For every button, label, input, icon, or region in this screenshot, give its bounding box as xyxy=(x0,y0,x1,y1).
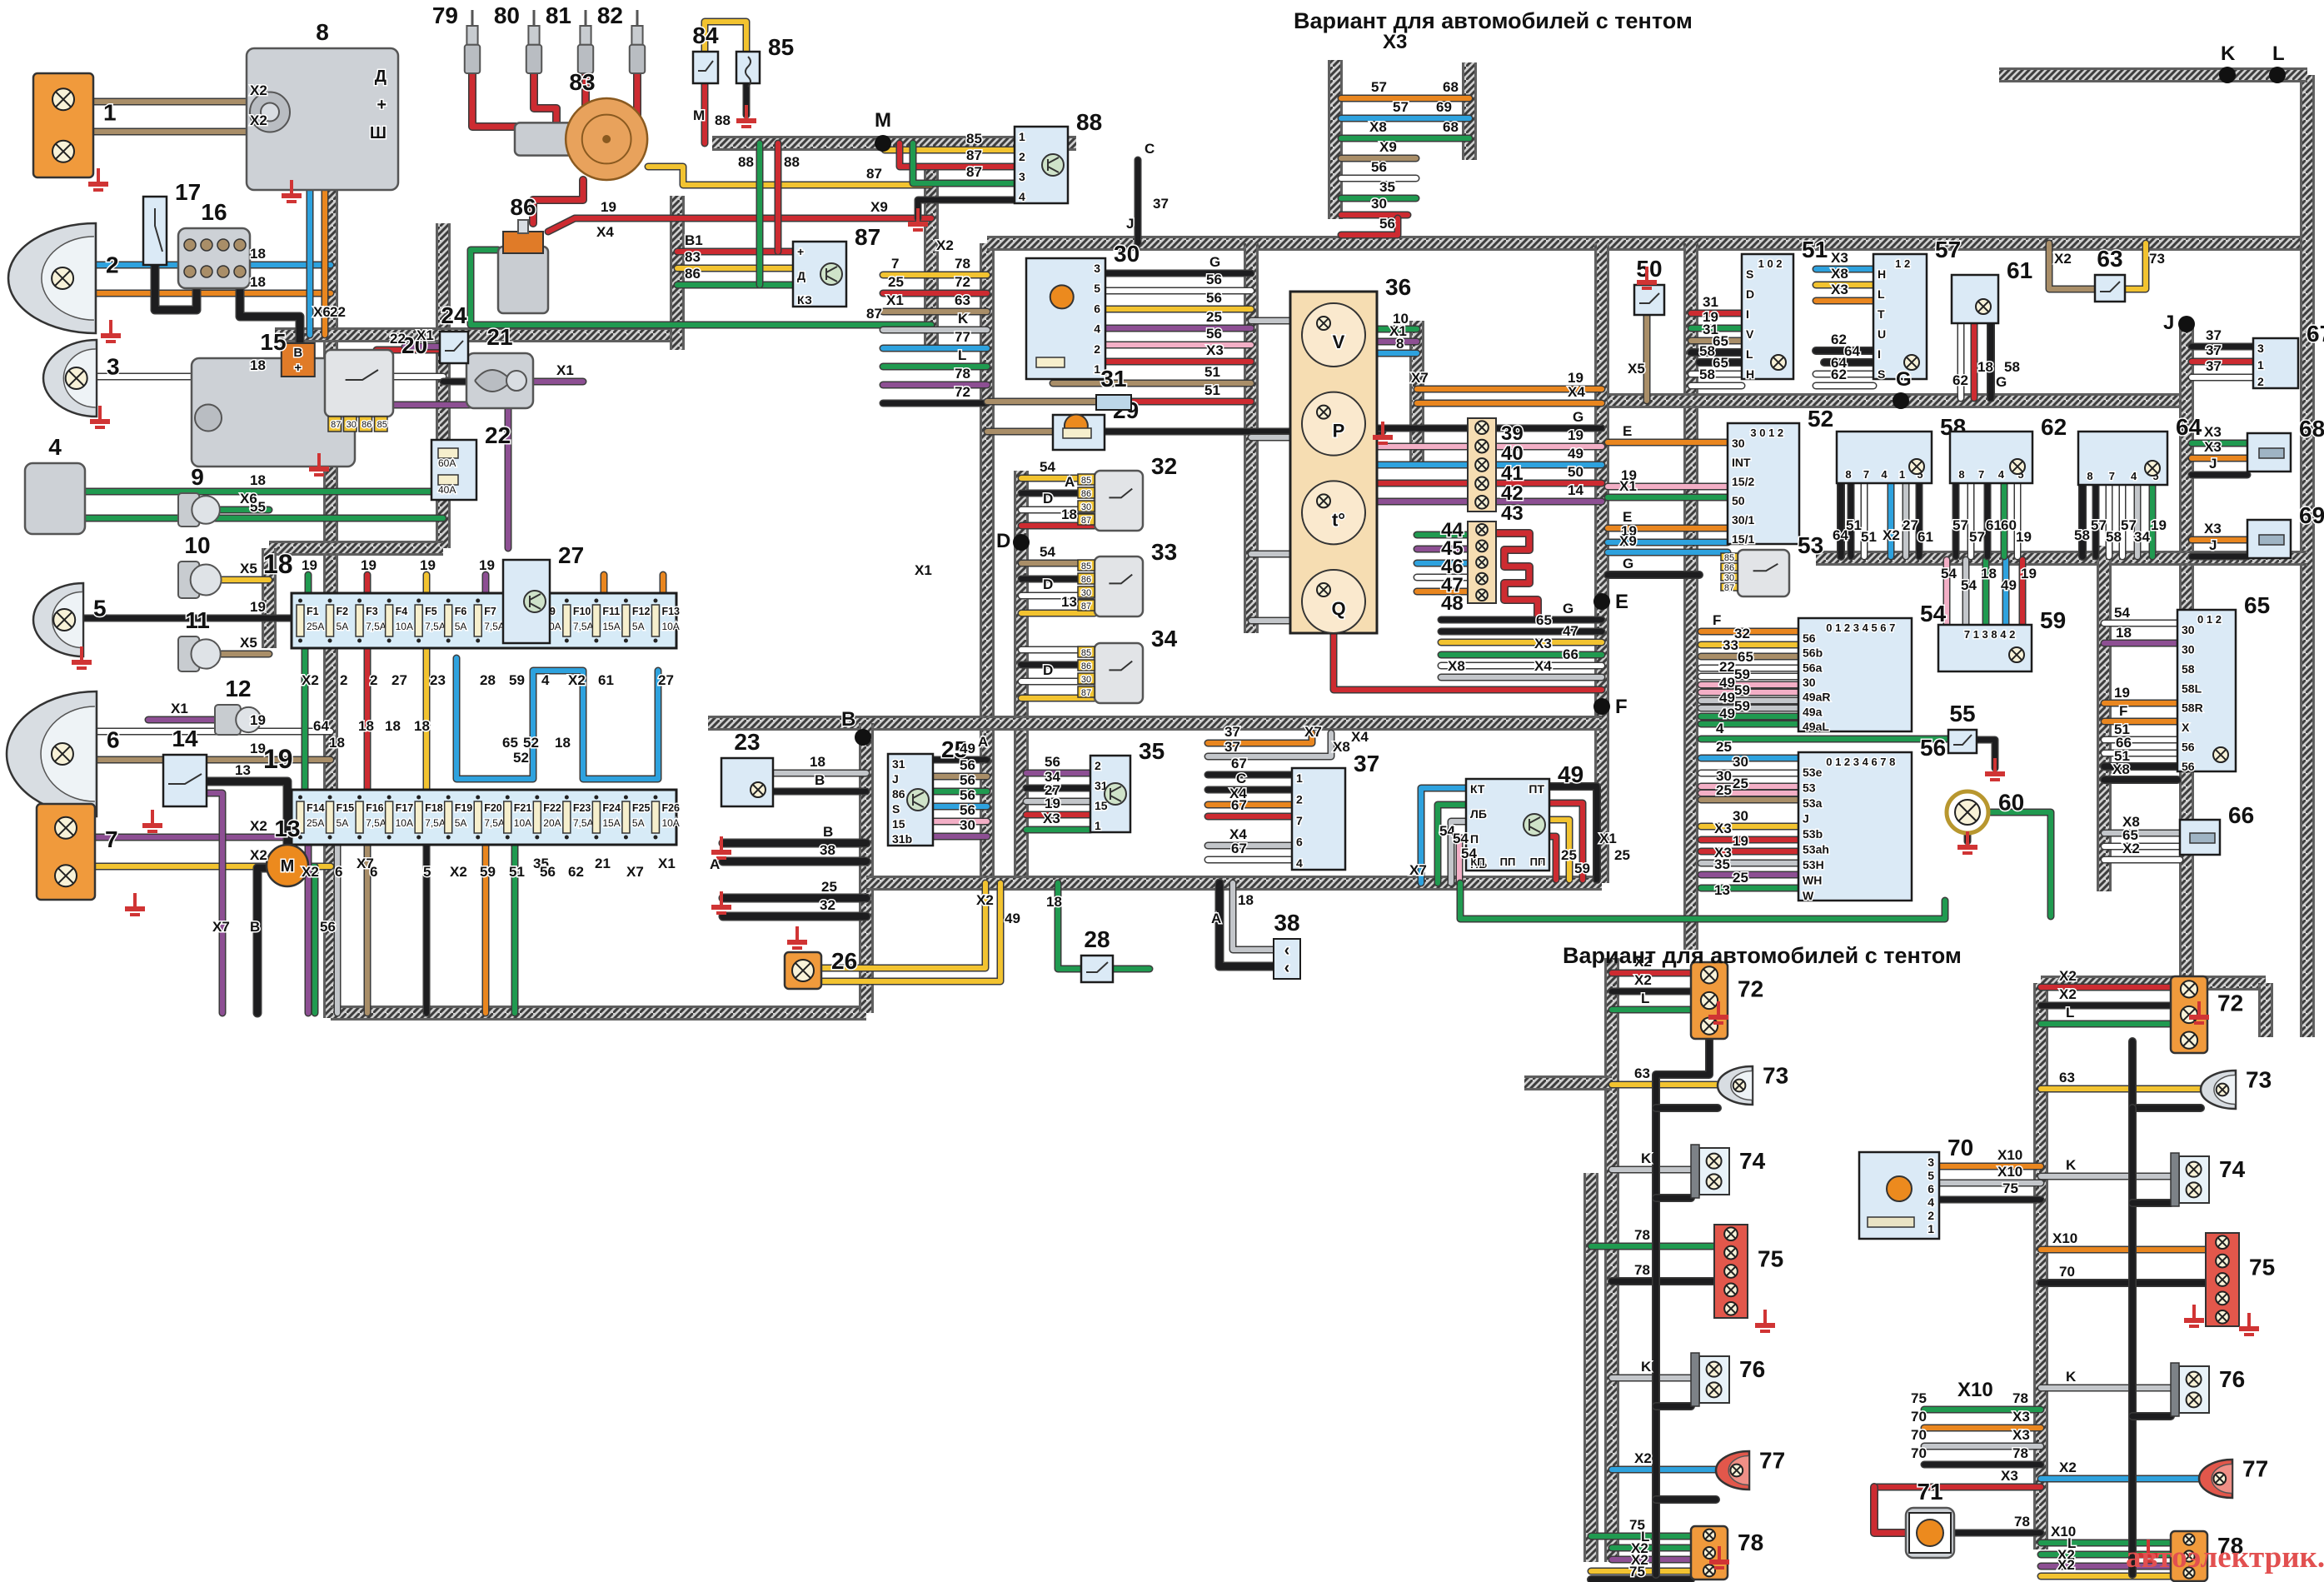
svg-text:56: 56 xyxy=(960,802,975,818)
component-50[interactable]: 50 xyxy=(1634,256,1664,315)
svg-text:19: 19 xyxy=(2114,685,2130,701)
svg-text:22: 22 xyxy=(390,331,406,347)
component-strip[interactable] xyxy=(1468,522,1496,603)
component-51[interactable]: 1 0 2SDIVLH51 xyxy=(1742,237,1828,381)
svg-text:2: 2 xyxy=(1928,1209,1934,1222)
svg-text:G: G xyxy=(1996,374,2007,390)
svg-text:86: 86 xyxy=(685,266,701,282)
bulb-icon xyxy=(2187,1162,2202,1177)
component-38[interactable]: ‹‹38 xyxy=(1274,910,1300,979)
svg-text:G: G xyxy=(1209,254,1220,270)
tent-variant-title-top: Вариант для автомобилей с тентом xyxy=(1294,8,1693,34)
component-76[interactable]: 76 xyxy=(1691,1353,1765,1406)
svg-text:60: 60 xyxy=(2001,517,2017,533)
svg-text:62: 62 xyxy=(1952,372,1968,388)
svg-text:49: 49 xyxy=(1719,675,1735,691)
svg-text:5A: 5A xyxy=(337,621,349,632)
component-75[interactable]: 75 xyxy=(1714,1225,1783,1318)
bulb-icon xyxy=(1724,1302,1738,1315)
svg-text:37: 37 xyxy=(1153,196,1169,212)
svg-text:1: 1 xyxy=(1928,1222,1934,1235)
svg-text:30: 30 xyxy=(2182,623,2195,636)
svg-text:25: 25 xyxy=(1614,847,1630,863)
svg-text:I: I xyxy=(1746,307,1749,321)
svg-text:56: 56 xyxy=(1920,735,1946,761)
svg-text:63: 63 xyxy=(2059,1070,2075,1085)
svg-text:30: 30 xyxy=(1733,754,1748,770)
svg-text:4: 4 xyxy=(541,672,550,688)
svg-text:2: 2 xyxy=(340,672,347,688)
svg-text:10A: 10A xyxy=(661,621,679,632)
svg-text:G: G xyxy=(1623,556,1633,571)
svg-text:56a: 56a xyxy=(1803,661,1823,674)
svg-text:5A: 5A xyxy=(337,817,349,829)
svg-text:2: 2 xyxy=(1296,793,1303,806)
svg-text:X10: X10 xyxy=(1997,1147,2022,1163)
svg-text:X5: X5 xyxy=(240,635,257,651)
svg-text:59: 59 xyxy=(1734,698,1750,714)
component-31[interactable]: 31 xyxy=(1096,366,1131,410)
svg-text:7: 7 xyxy=(105,826,118,852)
svg-text:38: 38 xyxy=(1274,910,1299,936)
svg-text:8: 8 xyxy=(1958,468,1964,481)
svg-text:15A: 15A xyxy=(602,621,620,632)
svg-text:67: 67 xyxy=(1231,841,1247,856)
ground-symbol xyxy=(101,320,121,343)
svg-text:X1: X1 xyxy=(915,562,932,578)
svg-text:S: S xyxy=(1746,267,1753,281)
svg-text:D: D xyxy=(1746,287,1754,301)
svg-text:B: B xyxy=(841,708,855,731)
svg-text:3: 3 xyxy=(1928,1155,1934,1169)
svg-text:78: 78 xyxy=(1738,1530,1763,1555)
svg-text:59: 59 xyxy=(2040,607,2066,633)
svg-text:15: 15 xyxy=(892,817,905,831)
svg-text:79: 79 xyxy=(432,2,458,28)
bulb-icon xyxy=(1724,1265,1738,1278)
svg-text:28: 28 xyxy=(1084,926,1110,952)
svg-text:19: 19 xyxy=(361,557,377,573)
component-88[interactable]: 123488 xyxy=(1015,109,1102,203)
svg-text:X8: X8 xyxy=(1448,658,1465,674)
svg-text:Д: Д xyxy=(375,67,387,86)
svg-text:87: 87 xyxy=(1081,688,1091,698)
svg-text:18: 18 xyxy=(1981,566,1997,581)
bulb-icon xyxy=(2010,459,2025,474)
svg-text:X3: X3 xyxy=(2012,1409,2030,1425)
svg-text:54: 54 xyxy=(1941,566,1957,581)
svg-text:72: 72 xyxy=(1738,976,1763,1001)
svg-text:20A: 20A xyxy=(543,817,561,829)
component-34[interactable]: 8586308734 xyxy=(1078,626,1178,703)
bulb-icon xyxy=(1771,355,1786,370)
svg-text:U: U xyxy=(1878,327,1886,341)
wiring-diagram-page: F125AF25AF37,5AF410AF57,5AF65AF77,5AF810… xyxy=(0,0,2324,1582)
svg-text:52: 52 xyxy=(513,750,529,766)
svg-text:X2: X2 xyxy=(2054,251,2072,267)
svg-text:31: 31 xyxy=(1703,294,1718,310)
svg-text:12: 12 xyxy=(225,676,251,701)
svg-text:4: 4 xyxy=(2131,470,2137,482)
component-60[interactable]: 60 xyxy=(1947,790,2024,834)
svg-text:X10: X10 xyxy=(1957,1379,1993,1401)
svg-text:K: K xyxy=(2221,42,2236,65)
svg-text:54: 54 xyxy=(2114,605,2130,621)
fusebox-19[interactable]: F1425AF155AF167,5AF1710AF187,5AF195AF207… xyxy=(292,790,680,845)
component-62[interactable]: 874562 xyxy=(1950,414,2067,483)
svg-text:F: F xyxy=(2119,703,2127,719)
svg-text:4: 4 xyxy=(1716,721,1724,736)
svg-text:B: B xyxy=(250,919,260,935)
svg-text:88: 88 xyxy=(784,154,800,170)
component-65[interactable]: 0 1 230305858L58RX565665 xyxy=(2177,592,2270,773)
svg-text:ПТ: ПТ xyxy=(1529,782,1544,796)
component-77[interactable]: 77 xyxy=(2199,1456,2268,1498)
svg-text:X: X xyxy=(2182,721,2190,734)
component-76[interactable]: 76 xyxy=(2171,1363,2245,1416)
svg-text:X1: X1 xyxy=(556,362,574,378)
component-5[interactable]: 5 xyxy=(33,583,107,656)
ground-symbol xyxy=(1957,831,1977,855)
svg-text:18: 18 xyxy=(1238,892,1254,908)
svg-text:L: L xyxy=(958,347,966,363)
component-4[interactable]: 4 xyxy=(25,434,85,534)
transistor-icon xyxy=(907,789,929,811)
svg-text:85: 85 xyxy=(1724,553,1734,563)
svg-text:35: 35 xyxy=(1139,738,1164,764)
component-54[interactable]: 0 1 2 3 4 5 6 75656b56a3049aR49a49aL54 xyxy=(1798,601,1947,733)
svg-text:24: 24 xyxy=(441,302,467,328)
svg-text:ПП: ПП xyxy=(1500,856,1516,868)
svg-text:L: L xyxy=(2272,42,2285,65)
component-10[interactable]: 10 xyxy=(178,532,222,598)
svg-text:57: 57 xyxy=(1935,237,1961,262)
svg-text:X8: X8 xyxy=(1333,739,1350,755)
bulb-icon xyxy=(2213,1473,2226,1485)
svg-text:49a: 49a xyxy=(1803,705,1823,718)
component-6[interactable]: 6 xyxy=(7,691,120,816)
svg-text:70: 70 xyxy=(2059,1264,2075,1280)
svg-text:76: 76 xyxy=(2219,1366,2245,1392)
svg-text:V: V xyxy=(1333,332,1345,352)
component-87[interactable]: +ДКЗ87 xyxy=(793,224,880,307)
svg-text:E: E xyxy=(1615,591,1628,613)
svg-text:30: 30 xyxy=(1081,502,1091,512)
svg-text:M: M xyxy=(875,109,891,132)
svg-text:30: 30 xyxy=(1724,573,1734,583)
svg-text:X3: X3 xyxy=(2204,424,2222,440)
svg-text:X2: X2 xyxy=(250,112,267,128)
bulb-icon xyxy=(2216,1310,2229,1324)
svg-text:37: 37 xyxy=(1224,739,1240,755)
bulb-icon xyxy=(66,367,87,389)
svg-text:7,5A: 7,5A xyxy=(573,621,594,632)
svg-text:21: 21 xyxy=(486,324,512,350)
component-24[interactable]: 24 xyxy=(440,302,468,363)
svg-text:10A: 10A xyxy=(396,621,413,632)
svg-text:61: 61 xyxy=(598,672,614,688)
svg-text:F1: F1 xyxy=(307,606,319,617)
ground-symbol xyxy=(1755,1310,1775,1333)
svg-text:6: 6 xyxy=(1296,836,1303,849)
svg-text:X2: X2 xyxy=(976,892,994,908)
svg-text:85: 85 xyxy=(768,34,794,60)
svg-text:D: D xyxy=(1043,662,1053,678)
svg-text:X6: X6 xyxy=(240,491,257,507)
component-33[interactable]: 8586308733 xyxy=(1078,539,1177,616)
svg-text:58L: 58L xyxy=(2182,681,2202,695)
svg-text:72: 72 xyxy=(2217,990,2243,1016)
component-23[interactable]: 23 xyxy=(721,729,773,806)
component-79[interactable]: 79 xyxy=(432,2,480,73)
bulb-icon xyxy=(55,865,77,886)
component-74[interactable]: 74 xyxy=(2171,1153,2246,1206)
svg-text:53H: 53H xyxy=(1803,858,1824,871)
component-37[interactable]: 1276437 xyxy=(1292,751,1379,870)
svg-text:34: 34 xyxy=(2134,529,2150,545)
svg-text:H: H xyxy=(1746,367,1754,381)
svg-text:M: M xyxy=(281,857,295,876)
svg-text:5: 5 xyxy=(423,864,431,880)
svg-text:18: 18 xyxy=(2116,625,2132,641)
component-1[interactable]: 1 xyxy=(33,73,117,177)
bulb-icon xyxy=(1703,1530,1715,1541)
svg-text:56: 56 xyxy=(1371,159,1387,175)
svg-text:1: 1 xyxy=(1095,819,1101,832)
svg-text:X2: X2 xyxy=(302,672,319,688)
component-72[interactable]: 72 xyxy=(1691,962,1763,1039)
wire xyxy=(1656,1039,1709,1575)
svg-text:22: 22 xyxy=(330,304,346,320)
svg-text:63: 63 xyxy=(955,292,970,308)
fusebox-18[interactable]: F125AF25AF37,5AF410AF57,5AF65AF77,5AF810… xyxy=(292,593,680,648)
svg-text:78: 78 xyxy=(2012,1445,2028,1461)
svg-text:25: 25 xyxy=(1716,782,1732,798)
svg-text:K: K xyxy=(1641,1150,1652,1166)
svg-text:59: 59 xyxy=(509,672,525,688)
svg-text:X2: X2 xyxy=(1634,1450,1652,1466)
svg-text:18: 18 xyxy=(358,718,374,734)
svg-text:13: 13 xyxy=(1061,594,1077,610)
svg-text:58R: 58R xyxy=(2182,701,2203,715)
component-32[interactable]: 8586308732 xyxy=(1078,453,1177,531)
component-16[interactable]: 16 xyxy=(178,199,250,288)
svg-text:23: 23 xyxy=(430,672,446,688)
svg-text:53e: 53e xyxy=(1803,766,1823,779)
component-77[interactable]: 77 xyxy=(1716,1448,1785,1490)
component-82[interactable]: 82 xyxy=(597,2,645,73)
svg-text:2: 2 xyxy=(106,252,119,277)
svg-text:54: 54 xyxy=(1453,831,1469,846)
svg-text:63: 63 xyxy=(1634,1065,1650,1081)
component-78[interactable]: 78 xyxy=(1691,1526,1763,1580)
svg-text:t°: t° xyxy=(1332,509,1345,530)
bulb-icon xyxy=(1724,1284,1738,1297)
bulb-icon xyxy=(1476,524,1488,536)
svg-text:19: 19 xyxy=(250,712,266,728)
svg-text:17: 17 xyxy=(175,179,201,205)
component-52[interactable]: 3 0 1 230INT15/25030/115/152 xyxy=(1728,406,1833,546)
svg-text:X4: X4 xyxy=(1351,729,1369,745)
svg-text:75: 75 xyxy=(1911,1390,1927,1406)
svg-text:7,5A: 7,5A xyxy=(366,621,387,632)
bulb-icon xyxy=(1707,1174,1722,1189)
component-80[interactable]: 80 xyxy=(494,2,541,73)
svg-text:Ш: Ш xyxy=(370,124,387,142)
svg-text:27: 27 xyxy=(1903,517,1918,533)
transistor-icon xyxy=(820,263,842,285)
component-84[interactable]: 84 xyxy=(692,22,719,83)
component-73[interactable]: 73 xyxy=(2201,1067,2272,1109)
component-74[interactable]: 74 xyxy=(1691,1145,1766,1198)
svg-text:14: 14 xyxy=(172,726,198,751)
component-61[interactable]: 61 xyxy=(1952,257,2032,323)
component-28[interactable]: 28 xyxy=(1081,926,1113,982)
watermark-text: автоэлектрик.net xyxy=(2126,1540,2324,1575)
svg-text:63: 63 xyxy=(2097,246,2122,272)
bulb-icon xyxy=(2216,1292,2229,1305)
svg-text:25: 25 xyxy=(821,879,837,895)
wire xyxy=(257,868,267,1013)
bulb-icon xyxy=(52,267,73,289)
svg-text:19: 19 xyxy=(1568,427,1583,443)
svg-text:50: 50 xyxy=(1636,256,1662,282)
svg-text:F25: F25 xyxy=(632,802,651,814)
svg-text:S: S xyxy=(1878,367,1885,381)
bulb-icon xyxy=(1703,1565,1715,1576)
svg-text:4: 4 xyxy=(1019,190,1025,203)
tent-variant-title-bottom: Вариант для автомобилей с тентом xyxy=(1563,943,1962,969)
svg-text:T: T xyxy=(1878,307,1885,321)
svg-text:7: 7 xyxy=(891,256,899,272)
svg-text:K: K xyxy=(2066,1369,2077,1385)
svg-text:7 1 3 8 4 2: 7 1 3 8 4 2 xyxy=(1964,628,2015,641)
component-58[interactable]: 8741558 xyxy=(1837,414,1966,483)
svg-text:50: 50 xyxy=(1732,494,1745,507)
svg-text:1: 1 xyxy=(1296,771,1303,785)
svg-text:21: 21 xyxy=(595,856,611,871)
svg-text:56: 56 xyxy=(1045,754,1060,770)
component-75[interactable]: 75 xyxy=(2206,1233,2275,1326)
svg-text:83: 83 xyxy=(685,249,701,265)
component-73[interactable]: 73 xyxy=(1718,1063,1788,1105)
svg-text:X8: X8 xyxy=(1831,266,1848,282)
svg-text:37: 37 xyxy=(1224,724,1240,740)
svg-text:КЗ: КЗ xyxy=(797,293,812,307)
svg-text:50: 50 xyxy=(1568,464,1583,480)
svg-text:5A: 5A xyxy=(455,621,467,632)
svg-text:57: 57 xyxy=(1952,517,1968,533)
svg-text:18: 18 xyxy=(385,718,401,734)
bulb-icon xyxy=(1909,459,1924,474)
svg-text:30: 30 xyxy=(960,817,975,833)
svg-text:13: 13 xyxy=(1714,882,1730,898)
svg-text:19: 19 xyxy=(1045,796,1060,811)
svg-text:L: L xyxy=(2066,1005,2074,1021)
svg-text:3 0 1 2: 3 0 1 2 xyxy=(1750,427,1783,439)
svg-text:J: J xyxy=(1803,812,1809,826)
svg-text:32: 32 xyxy=(1151,453,1177,479)
svg-text:86: 86 xyxy=(362,420,372,430)
svg-text:56: 56 xyxy=(2182,741,2195,754)
wire xyxy=(1988,812,2051,916)
component-56[interactable]: 0 1 2 3 4 6 7 853e5353aJ53b53ah53HWHW56 xyxy=(1798,735,1946,902)
svg-text:F10: F10 xyxy=(573,606,591,617)
svg-text:71: 71 xyxy=(1917,1479,1942,1505)
component-7[interactable]: 7 xyxy=(37,804,118,900)
svg-text:19: 19 xyxy=(2021,566,2037,581)
svg-text:73: 73 xyxy=(2246,1067,2272,1093)
component-86[interactable]: 86 xyxy=(498,194,548,313)
svg-text:0 1 2: 0 1 2 xyxy=(2197,613,2222,626)
svg-text:S: S xyxy=(892,802,900,816)
svg-text:9: 9 xyxy=(191,464,204,490)
svg-text:18: 18 xyxy=(1061,507,1077,522)
svg-text:51: 51 xyxy=(1846,517,1862,533)
component-3[interactable]: 3 xyxy=(43,340,120,417)
svg-text:88: 88 xyxy=(1076,109,1102,135)
component-8[interactable]: Д+Ш8 xyxy=(247,19,398,190)
svg-text:F4: F4 xyxy=(396,606,408,617)
svg-text:X2: X2 xyxy=(2059,986,2077,1002)
svg-text:62: 62 xyxy=(2041,414,2067,440)
svg-text:J: J xyxy=(892,772,899,786)
svg-text:85: 85 xyxy=(377,420,387,430)
component-2[interactable]: 2 xyxy=(8,223,119,333)
svg-text:КТ: КТ xyxy=(1470,782,1485,796)
component-63[interactable]: 63 xyxy=(2095,246,2125,302)
svg-text:37: 37 xyxy=(1354,751,1379,776)
svg-text:F17: F17 xyxy=(396,802,414,814)
component-35[interactable]: 23115135 xyxy=(1090,738,1164,832)
svg-text:B: B xyxy=(823,824,833,840)
svg-text:D: D xyxy=(1043,576,1053,592)
bulb-icon xyxy=(1707,1362,1722,1377)
svg-text:3: 3 xyxy=(1094,262,1100,275)
svg-text:88: 88 xyxy=(738,154,754,170)
svg-text:33: 33 xyxy=(1151,539,1177,565)
svg-text:F6: F6 xyxy=(455,606,467,617)
svg-text:WH: WH xyxy=(1803,874,1822,887)
component-55[interactable]: 55 xyxy=(1948,701,1977,753)
svg-text:Q: Q xyxy=(1331,598,1345,619)
svg-text:62: 62 xyxy=(1831,367,1847,382)
svg-text:86: 86 xyxy=(1724,563,1734,573)
component-57[interactable]: 1 2HLTUIS57 xyxy=(1873,237,1961,381)
svg-text:66: 66 xyxy=(2228,802,2254,828)
svg-text:1 0 2: 1 0 2 xyxy=(1758,257,1783,270)
svg-text:X8: X8 xyxy=(1369,119,1387,135)
svg-text:1 2: 1 2 xyxy=(1895,257,1910,270)
svg-text:56: 56 xyxy=(540,864,556,880)
junction-L: L xyxy=(2269,42,2286,83)
svg-text:51: 51 xyxy=(1861,529,1877,545)
svg-text:85: 85 xyxy=(966,131,982,147)
ground-symbol xyxy=(142,810,162,833)
svg-text:54: 54 xyxy=(1920,601,1947,626)
svg-text:59: 59 xyxy=(1734,666,1750,682)
component-strip[interactable] xyxy=(1468,418,1496,512)
svg-text:F21: F21 xyxy=(514,802,532,814)
component-81[interactable]: 81 xyxy=(546,2,593,73)
svg-text:68: 68 xyxy=(1443,79,1459,95)
component-14[interactable]: 14 xyxy=(163,726,207,806)
svg-text:32: 32 xyxy=(820,897,835,913)
svg-text:75: 75 xyxy=(1629,1564,1645,1580)
svg-text:X3: X3 xyxy=(2204,439,2222,455)
svg-text:L: L xyxy=(1878,287,1885,301)
svg-text:13: 13 xyxy=(235,762,251,778)
